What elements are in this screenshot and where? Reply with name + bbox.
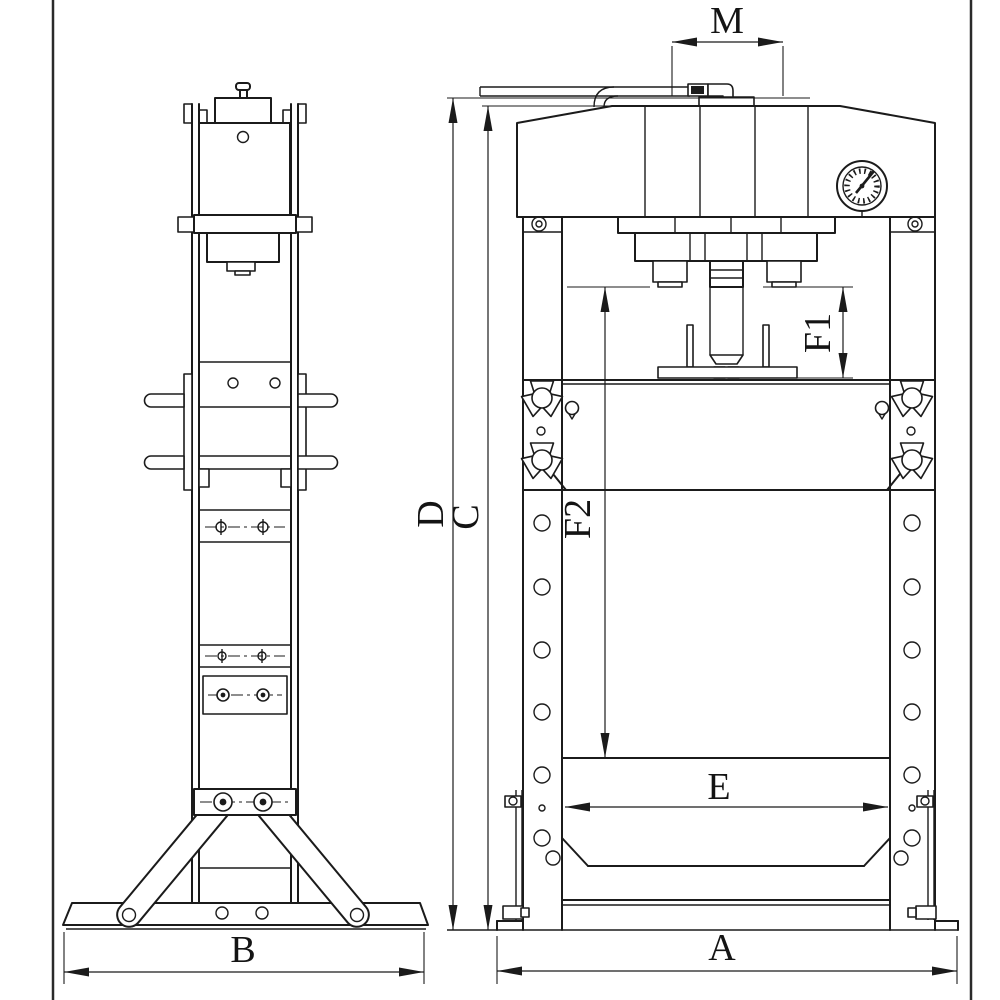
technical-drawing: M D C F1 F2 E <box>0 0 1000 1000</box>
feet <box>497 790 958 930</box>
front-columns <box>523 217 935 930</box>
side-view <box>63 83 428 929</box>
upper-table <box>523 380 935 490</box>
dim-label-e: E <box>707 766 730 808</box>
dim-label-c: C <box>445 504 487 529</box>
table-pin-knobs <box>522 381 933 478</box>
dim-M: M <box>672 0 783 96</box>
dim-label-a: A <box>708 927 736 969</box>
dim-label-f2: F2 <box>557 499 599 539</box>
column-holes <box>534 515 920 865</box>
pump-handle <box>480 84 733 107</box>
dim-E: E <box>565 766 888 808</box>
dim-A: A <box>497 927 957 984</box>
dim-label-f1: F1 <box>797 313 839 353</box>
dim-B: B <box>64 929 424 984</box>
dim-label-b: B <box>230 929 255 971</box>
dim-label-m: M <box>710 0 744 42</box>
dim-F2: F2 <box>557 287 605 758</box>
drawing-sheet: M D C F1 F2 E <box>0 0 1000 1000</box>
front-view <box>447 84 958 930</box>
